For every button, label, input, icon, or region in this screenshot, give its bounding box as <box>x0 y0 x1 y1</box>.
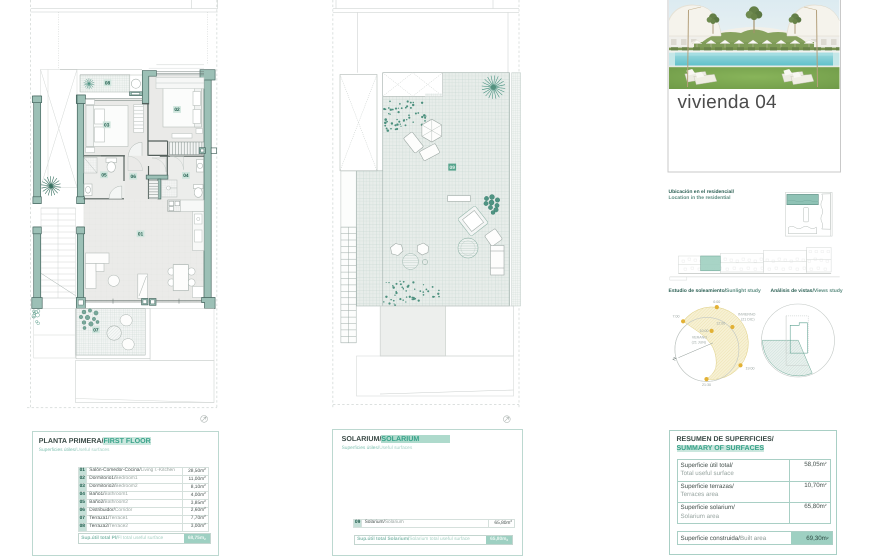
svg-text:06: 06 <box>131 174 136 180</box>
svg-text:07: 07 <box>93 328 98 334</box>
svg-text:04: 04 <box>183 173 189 179</box>
svg-text:INVIERNO: INVIERNO <box>738 312 756 317</box>
svg-text:(21 DIC): (21 DIC) <box>741 317 755 322</box>
svg-text:09: 09 <box>450 165 455 171</box>
svg-text:(21 JUN): (21 JUN) <box>692 340 706 345</box>
svg-text:03: 03 <box>104 123 109 129</box>
svg-text:10:00: 10:00 <box>700 329 709 334</box>
svg-text:08: 08 <box>105 81 111 87</box>
svg-text:01: 01 <box>138 232 144 238</box>
svg-text:02: 02 <box>174 107 179 113</box>
svg-text:21:30: 21:30 <box>702 382 711 387</box>
svg-text:12:00: 12:00 <box>716 321 725 326</box>
svg-text:7:00: 7:00 <box>673 314 680 319</box>
svg-text:6:00: 6:00 <box>713 299 720 304</box>
svg-text:05: 05 <box>101 173 107 179</box>
svg-text:19:00: 19:00 <box>746 366 755 371</box>
svg-text:VERANO: VERANO <box>692 335 707 340</box>
